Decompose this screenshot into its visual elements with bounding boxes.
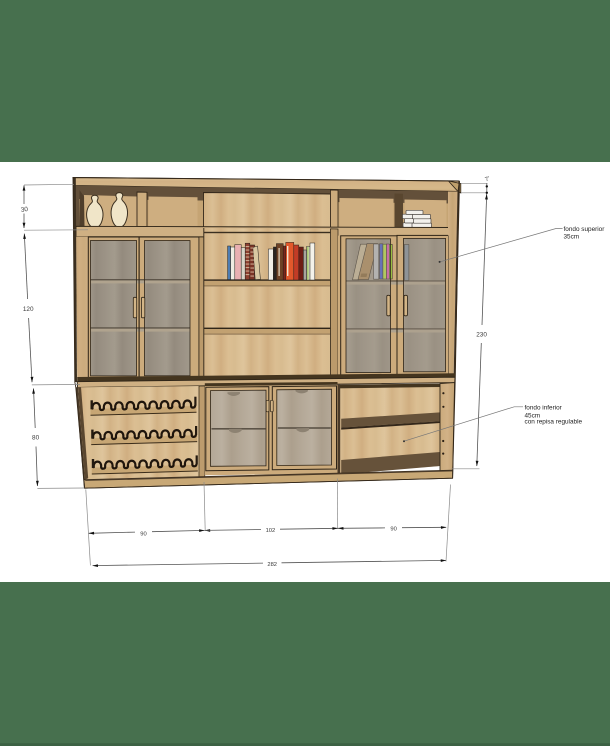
- svg-text:fondo superior: fondo superior: [564, 226, 606, 233]
- svg-text:80: 80: [32, 435, 40, 442]
- svg-text:282: 282: [267, 562, 277, 568]
- svg-text:fondo inferior: fondo inferior: [525, 405, 563, 412]
- svg-text:90: 90: [390, 526, 396, 532]
- svg-text:con repisa regulable: con repisa regulable: [525, 419, 583, 426]
- svg-text:230: 230: [476, 331, 487, 338]
- svg-text:35cm: 35cm: [564, 234, 580, 241]
- svg-text:102: 102: [266, 528, 276, 534]
- svg-text:30: 30: [20, 206, 28, 214]
- svg-text:120: 120: [23, 306, 34, 313]
- svg-text:90: 90: [140, 531, 146, 537]
